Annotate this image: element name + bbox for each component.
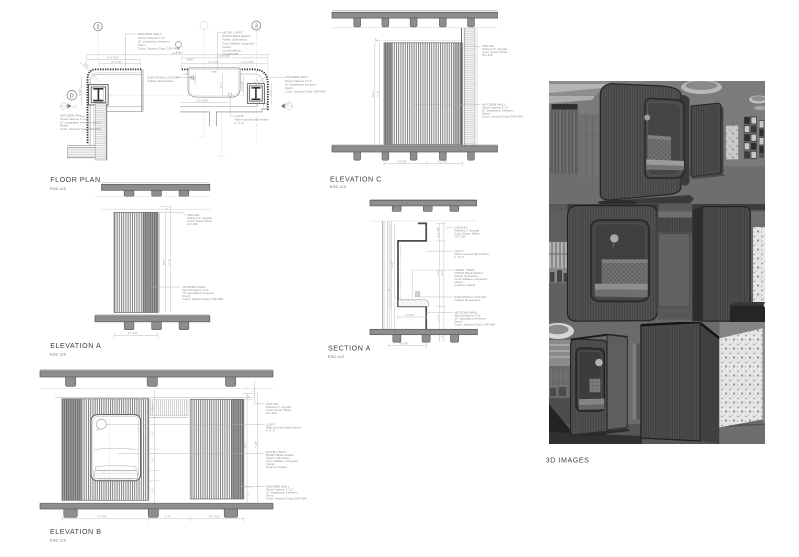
- svg-text:1'10": 1'10": [78, 89, 82, 95]
- svg-text:OC-152: OC-152: [187, 222, 198, 226]
- svg-text:h: 6'-2": h: 6'-2": [266, 428, 276, 432]
- svg-text:1:2: 1:2: [73, 105, 77, 109]
- svg-text:1'3/4": 1'3/4": [151, 404, 155, 411]
- svg-text:2'-4 3/8": 2'-4 3/8": [240, 81, 244, 92]
- svg-text:Color: Stained Gray CSP-680: Color: Stained Gray CSP-680: [266, 497, 307, 501]
- svg-text:h: 6'-2": h: 6'-2": [455, 255, 465, 259]
- svg-text:h: 2'-4": h: 2'-4": [235, 121, 245, 125]
- svg-text:3'-4": 3'-4": [165, 515, 171, 519]
- svg-text:Color: Stained Gray CSP-680: Color: Stained Gray CSP-680: [138, 47, 179, 51]
- svg-text:seat: seat: [211, 69, 217, 73]
- svg-text:ESC:1/2: ESC:1/2: [50, 186, 67, 191]
- svg-text:1:2: 1:2: [176, 50, 180, 54]
- svg-text:1'850": 1'850": [186, 58, 194, 62]
- svg-text:8'-2": 8'-2": [440, 270, 444, 276]
- svg-text:FLOOR PLAN: FLOOR PLAN: [50, 176, 100, 184]
- svg-text:ESC:1/2: ESC:1/2: [328, 354, 345, 359]
- svg-text:2'-4 1/8": 2'-4 1/8": [111, 60, 122, 64]
- svg-text:2'5 11/16": 2'5 11/16": [196, 98, 209, 102]
- svg-text:3'4 7/16": 3'4 7/16": [209, 515, 220, 519]
- svg-text:2'1 3/4": 2'1 3/4": [128, 331, 138, 335]
- svg-text:8'-2": 8'-2": [371, 91, 375, 97]
- svg-text:SECTION A: SECTION A: [328, 345, 371, 353]
- svg-text:Color: Stained Gray CSP-680: Color: Stained Gray CSP-680: [60, 127, 101, 131]
- svg-text:4'-2 7/16": 4'-2 7/16": [107, 55, 119, 59]
- svg-text:ELEVATION A: ELEVATION A: [50, 342, 101, 350]
- svg-text:2'4 1/8": 2'4 1/8": [397, 160, 407, 164]
- svg-text:Color: Stained Gray CSP-680: Color: Stained Gray CSP-680: [285, 90, 326, 94]
- svg-text:Cushion (back): Cushion (back): [266, 465, 287, 469]
- svg-text:8'-2": 8'-2": [243, 442, 247, 448]
- svg-text:OC-152: OC-152: [482, 53, 493, 57]
- svg-text:ELEVATION C: ELEVATION C: [330, 175, 382, 183]
- svg-text:4'-4": 4'-4": [390, 262, 394, 268]
- svg-text:3D IMAGES: 3D IMAGES: [546, 456, 590, 464]
- svg-text:Color: Stained Gray CSP-680: Color: Stained Gray CSP-680: [183, 297, 224, 301]
- svg-text:1'-4": 1'-4": [151, 457, 155, 463]
- svg-text:2: 2: [96, 25, 99, 31]
- svg-text:7'-4": 7'-4": [167, 259, 171, 265]
- svg-text:Color: Stained Gray CSP-680: Color: Stained Gray CSP-680: [455, 322, 496, 326]
- svg-text:8'-2": 8'-2": [162, 259, 166, 265]
- svg-text:2'-4": 2'-4": [219, 82, 223, 88]
- svg-text:ESC:1/2: ESC:1/2: [330, 184, 347, 189]
- svg-text:ESC:1/2: ESC:1/2: [50, 538, 67, 543]
- svg-text:3: 3: [255, 24, 258, 30]
- svg-text:7'4 7/8": 7'4 7/8": [97, 515, 107, 519]
- svg-text:3'6 5/8": 3'6 5/8": [399, 342, 409, 346]
- svg-text:Duplex Receptacle: Duplex Receptacle: [455, 298, 481, 302]
- svg-text:ELEVATION B: ELEVATION B: [50, 528, 102, 536]
- svg-text:3'2 7/8": 3'2 7/8": [438, 160, 448, 164]
- svg-text:7'-4": 7'-4": [376, 91, 380, 97]
- svg-text:D: D: [70, 93, 74, 99]
- svg-text:2": 2": [374, 38, 378, 41]
- svg-text:2": 2": [165, 207, 169, 210]
- svg-text:Cushion (back): Cushion (back): [455, 283, 476, 287]
- svg-text:Duplex Receptacle: Duplex Receptacle: [148, 79, 174, 83]
- svg-text:1:2: 1:2: [285, 102, 289, 106]
- svg-text:1'-4 7/16": 1'-4 7/16": [242, 60, 254, 64]
- svg-text:2": 2": [246, 394, 250, 397]
- svg-text:1'-4": 1'-4": [436, 315, 440, 321]
- svg-text:7'-10": 7'-10": [254, 441, 258, 448]
- svg-text:DIYMSLAB: DIYMSLAB: [222, 52, 238, 56]
- svg-text:2'-1": 2'-1": [268, 90, 272, 96]
- svg-text:1'-4": 1'-4": [151, 488, 155, 494]
- svg-text:ESC:1/2: ESC:1/2: [50, 352, 67, 357]
- svg-text:4'-2": 4'-2": [151, 431, 155, 437]
- svg-text:Color: Stained Gray CSP-680: Color: Stained Gray CSP-680: [482, 114, 523, 118]
- svg-text:2'4 1/4": 2'4 1/4": [405, 313, 415, 317]
- svg-text:OC-152: OC-152: [266, 411, 277, 415]
- svg-text:OC-152: OC-152: [455, 235, 466, 239]
- svg-text:4'-1 7/8": 4'-1 7/8": [208, 60, 219, 64]
- svg-text:1'-4 1/8": 1'-4 1/8": [436, 227, 440, 238]
- svg-text:8": 8": [192, 78, 196, 81]
